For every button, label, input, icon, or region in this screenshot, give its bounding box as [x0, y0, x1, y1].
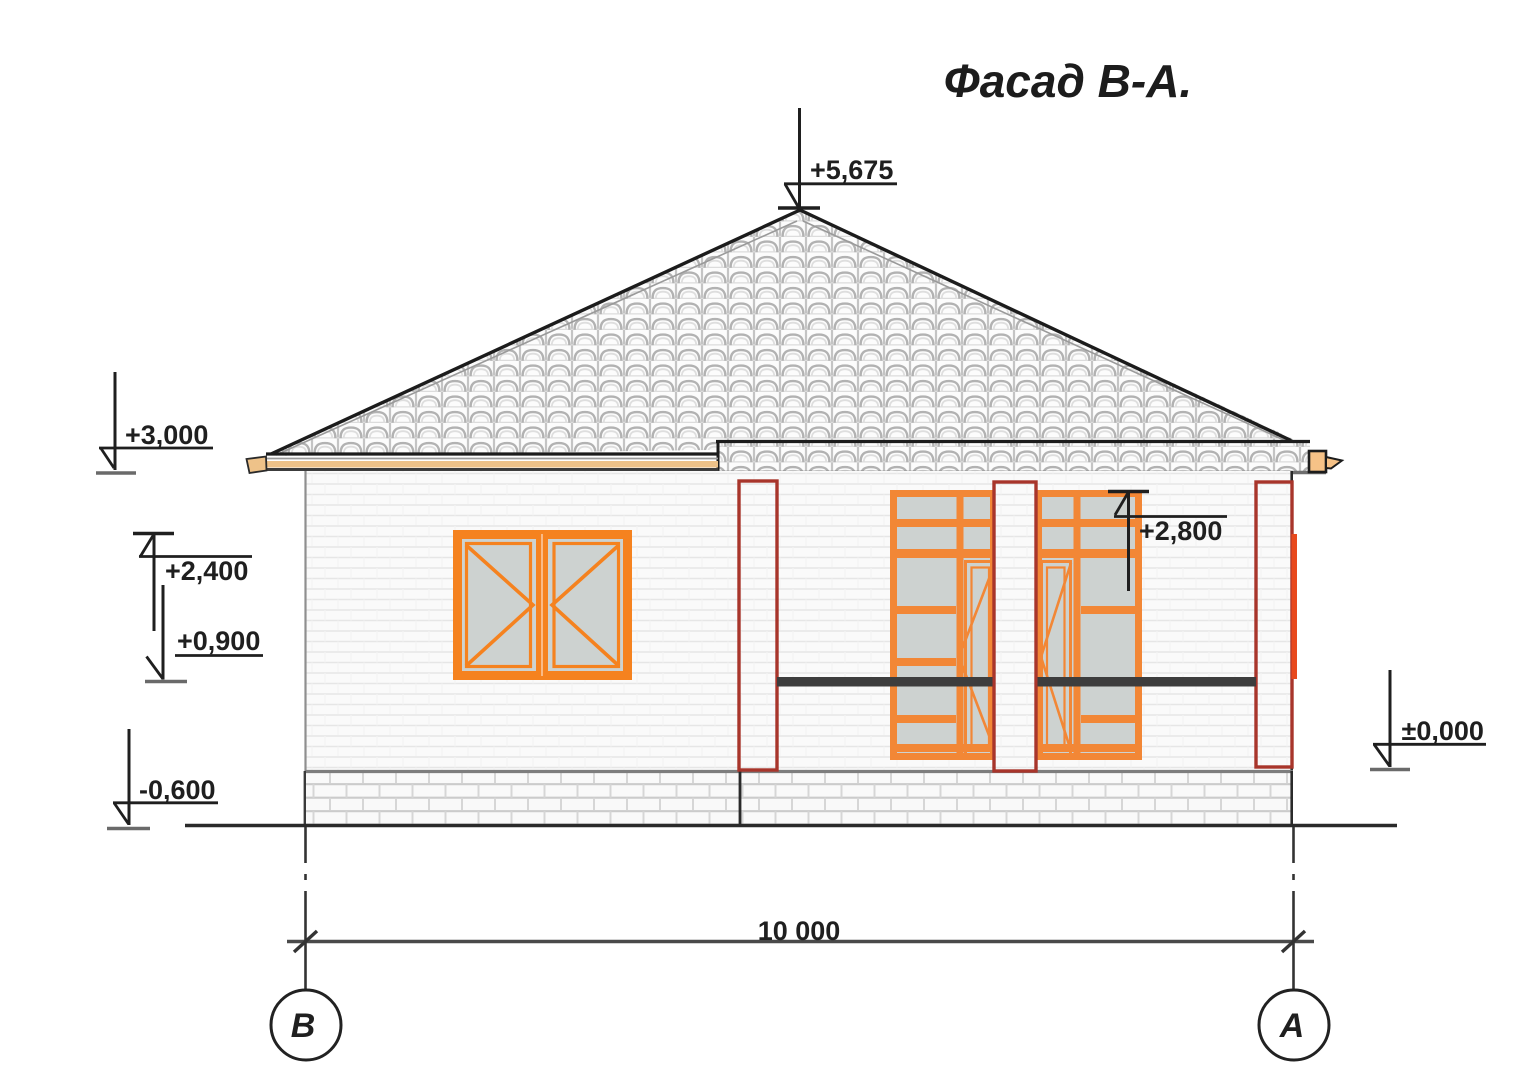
svg-text:+5,675: +5,675 [810, 155, 893, 185]
svg-text:+2,400: +2,400 [165, 556, 248, 586]
svg-text:+3,000: +3,000 [125, 420, 208, 450]
svg-text:-0,600: -0,600 [139, 775, 216, 805]
svg-text:+2,800: +2,800 [1139, 516, 1222, 546]
svg-text:Фасад В-А.: Фасад В-А. [944, 55, 1192, 107]
svg-text:±0,000: ±0,000 [1402, 716, 1484, 746]
svg-text:10 000: 10 000 [758, 916, 841, 946]
svg-text:А: А [1279, 1007, 1305, 1045]
svg-text:В: В [291, 1007, 316, 1045]
svg-text:+0,900: +0,900 [177, 626, 260, 656]
